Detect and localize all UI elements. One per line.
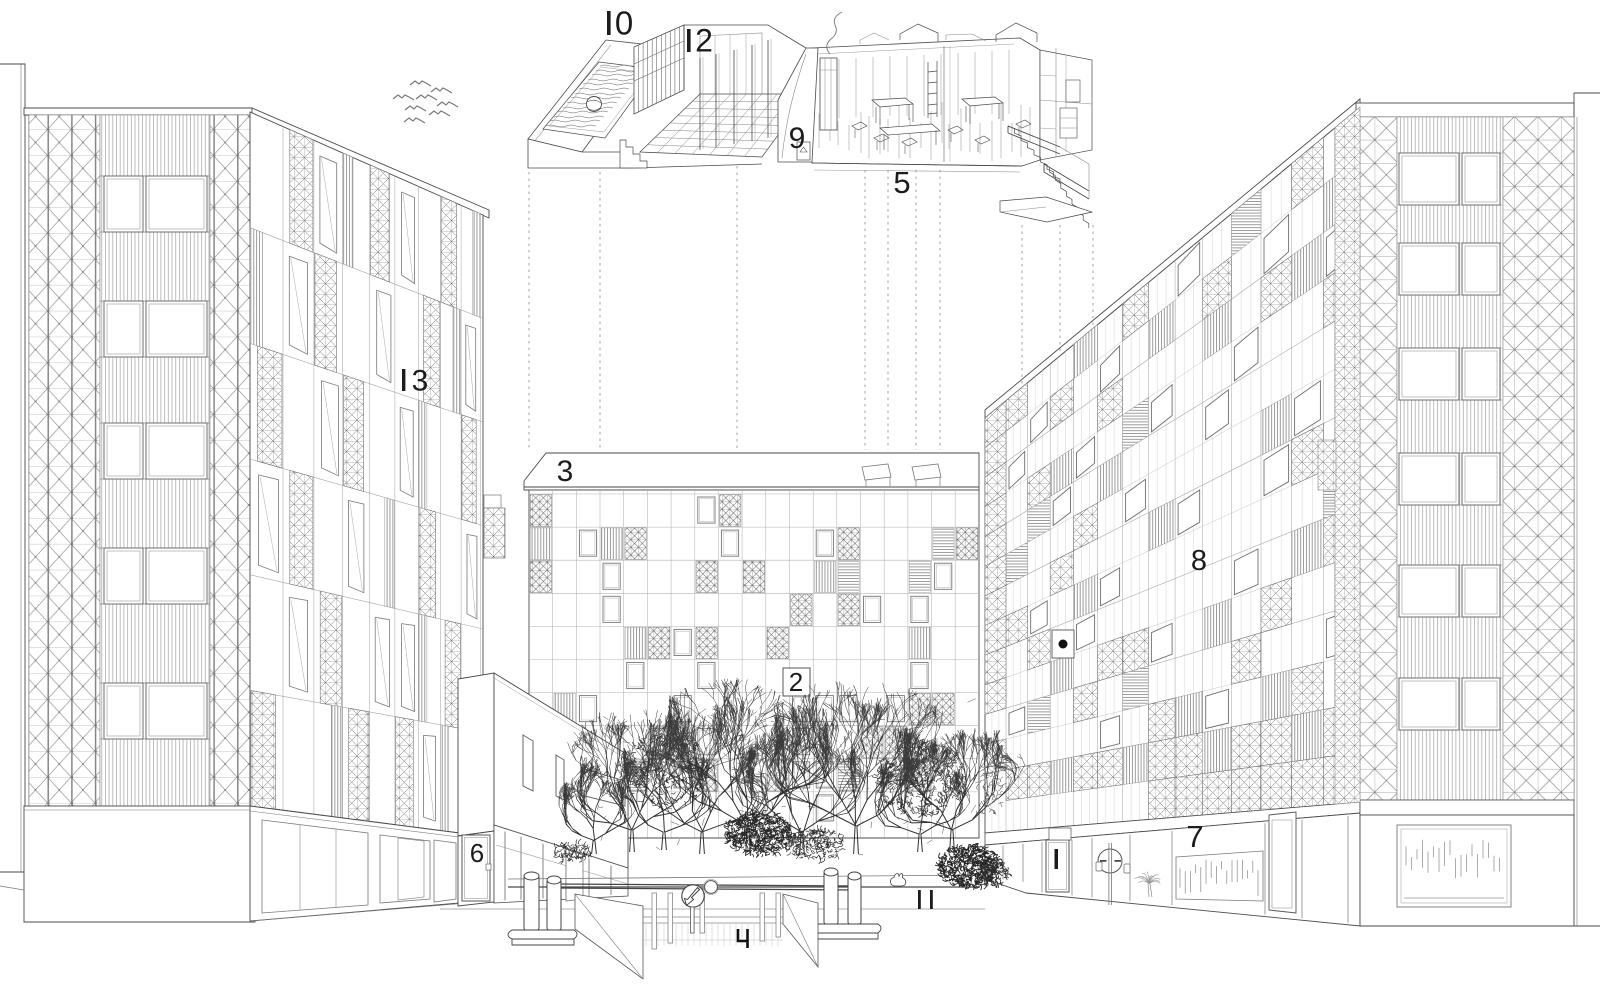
svg-text:0: 0 xyxy=(615,5,633,42)
svg-text:7: 7 xyxy=(1186,819,1203,854)
svg-text:8: 8 xyxy=(1191,545,1207,577)
svg-text:2: 2 xyxy=(789,667,803,697)
svg-text:3: 3 xyxy=(412,365,429,398)
svg-text:9: 9 xyxy=(789,122,806,155)
svg-text:3: 3 xyxy=(557,455,574,488)
svg-text:2: 2 xyxy=(695,23,713,59)
svg-text:5: 5 xyxy=(893,165,910,200)
svg-text:6: 6 xyxy=(470,838,484,868)
